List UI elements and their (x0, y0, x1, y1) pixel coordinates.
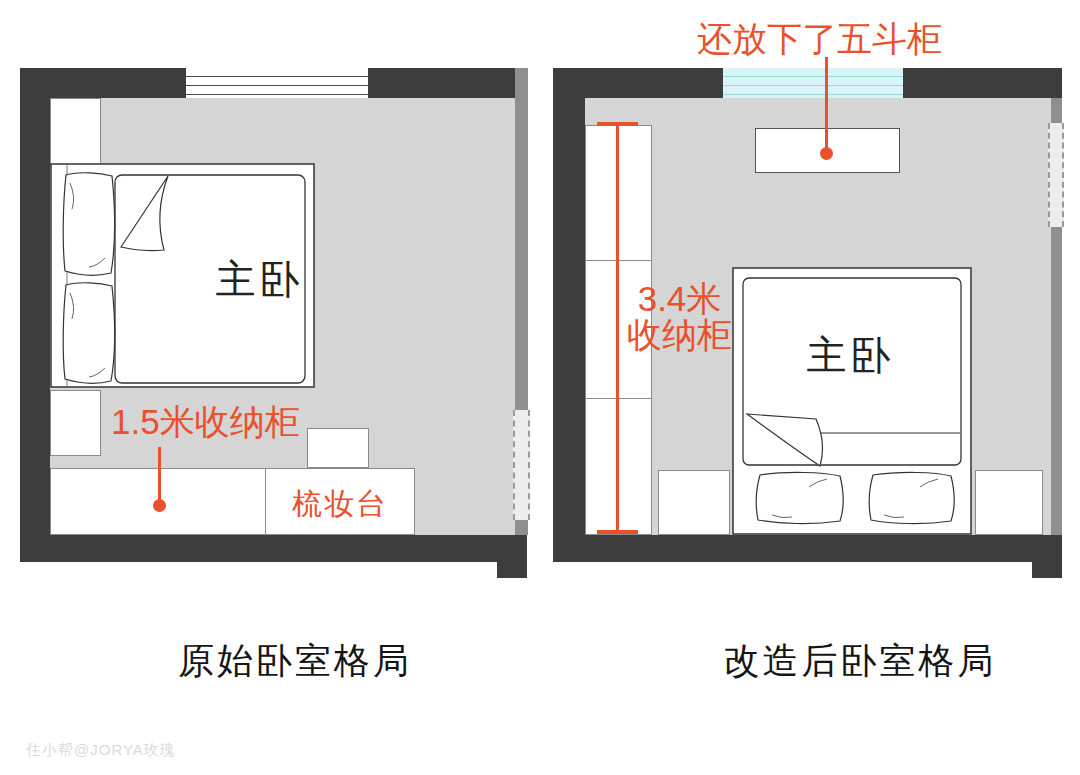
cabinet-annotation: 3.4米 收纳柜 (622, 281, 737, 353)
cabinet-annotation-line2: 收纳柜 (622, 317, 737, 353)
nightstand (658, 470, 730, 535)
wall-left (20, 68, 50, 562)
wall-bottom (553, 535, 1062, 562)
dressing-table: 梳妆台 (265, 468, 415, 535)
watermark: 住小帮@JORYA玫瑰 (26, 741, 176, 760)
room-label: 主卧 (798, 328, 903, 383)
wall-bottom-notch (1032, 562, 1062, 578)
leader-line (158, 447, 161, 503)
door-opening (513, 410, 530, 520)
room-label: 主卧 (202, 252, 317, 307)
leader-dot (153, 499, 166, 512)
dimension-tick-top (597, 122, 638, 126)
chest-annotation: 还放下了五斗柜 (697, 16, 942, 63)
wall-right-stub (515, 520, 528, 535)
plan-caption: 改造后卧室格局 (710, 637, 1010, 686)
stool (307, 428, 369, 468)
nightstand (50, 390, 101, 456)
nightstand (50, 98, 101, 166)
dimension-tick-bottom (597, 530, 638, 534)
floorplan-comparison: 梳妆台 主卧 1.5米收纳柜 原始卧室格局 (0, 0, 1080, 775)
cabinet-annotation: 1.5米收纳柜 (111, 399, 300, 446)
door-opening (1048, 123, 1064, 227)
bed-icon (732, 267, 972, 535)
cabinet-annotation-line1: 3.4米 (622, 281, 737, 317)
wall-right (515, 68, 528, 410)
leader-line (825, 57, 828, 152)
wall-right (1051, 227, 1062, 535)
window (723, 68, 903, 98)
dimension-line (616, 125, 619, 533)
leader-dot (820, 147, 833, 160)
wall-right-stub (1051, 98, 1062, 123)
wall-bottom-notch (497, 562, 527, 578)
window (186, 68, 368, 98)
plan-caption: 原始卧室格局 (135, 637, 455, 686)
dressing-table-label: 梳妆台 (266, 484, 414, 525)
nightstand (975, 470, 1043, 535)
wall-bottom (20, 535, 527, 562)
wall-left (553, 68, 585, 562)
